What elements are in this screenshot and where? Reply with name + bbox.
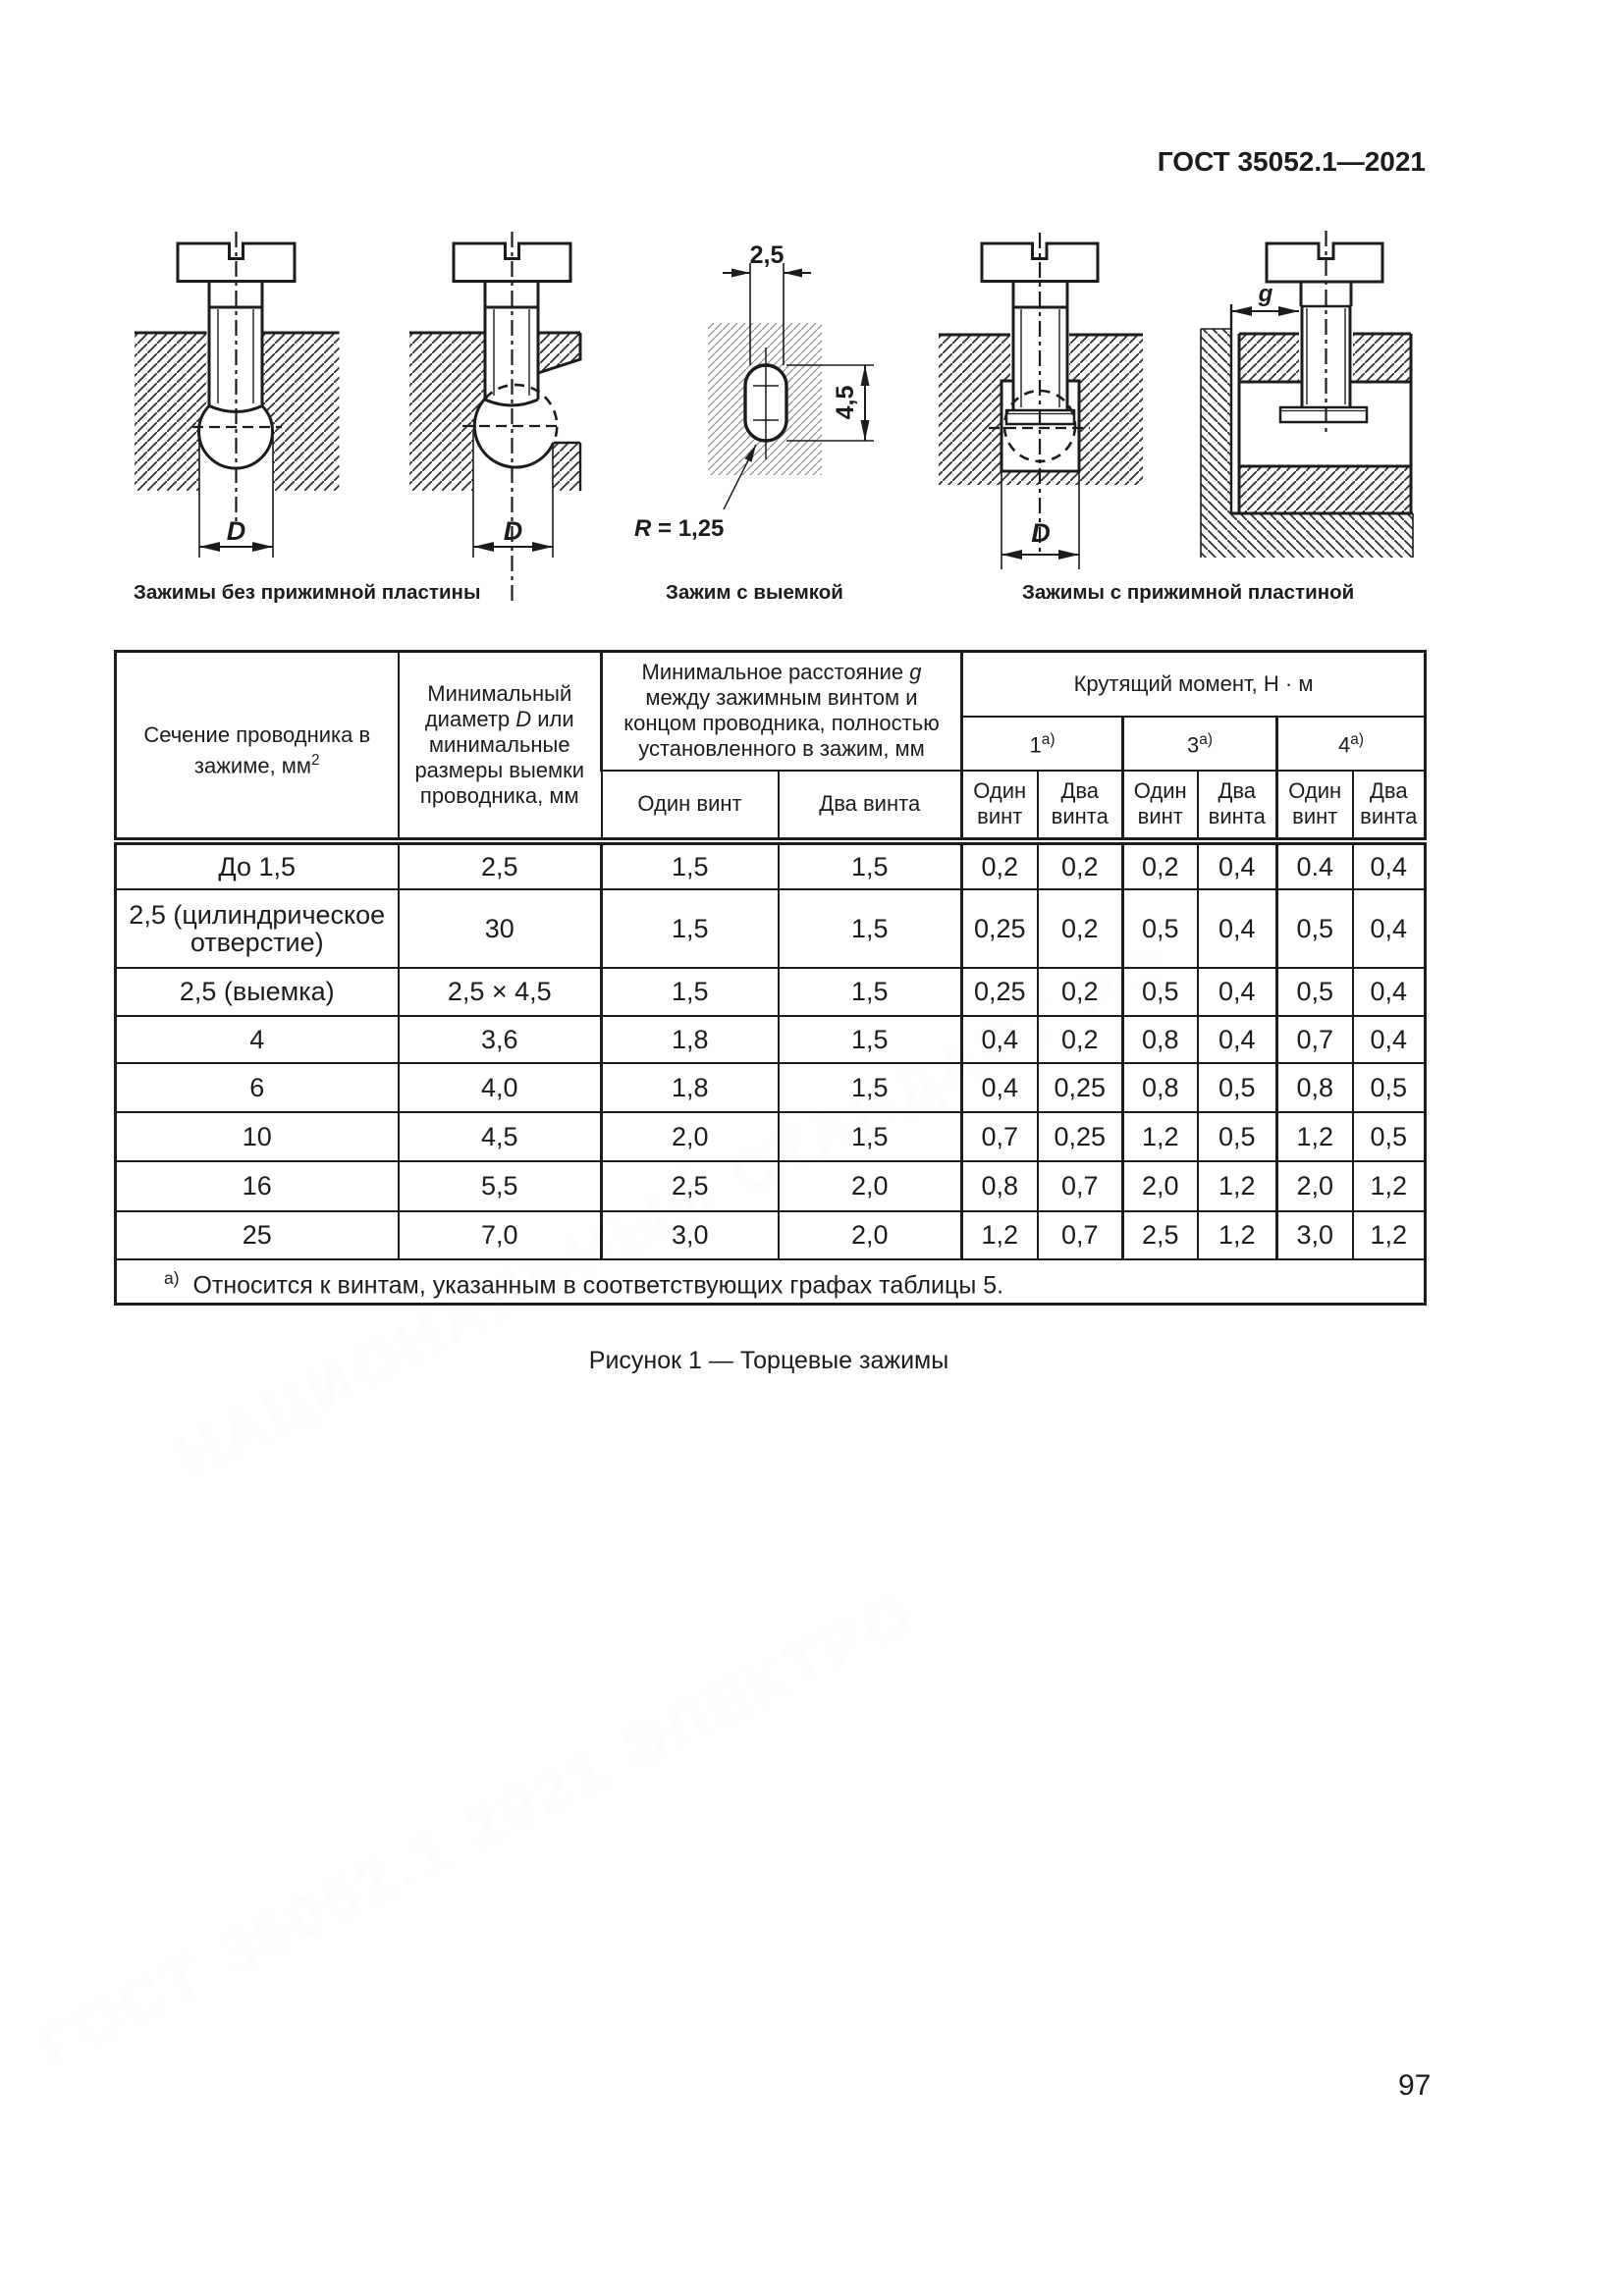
svg-text:2,5: 2,5: [750, 241, 785, 269]
svg-text:4,5: 4,5: [832, 386, 859, 420]
svg-text:R = 1,25: R = 1,25: [634, 515, 724, 542]
svg-text:g: g: [1258, 281, 1273, 307]
svg-text:D: D: [1031, 518, 1051, 548]
svg-text:D: D: [504, 516, 523, 546]
svg-text:D: D: [227, 516, 246, 546]
